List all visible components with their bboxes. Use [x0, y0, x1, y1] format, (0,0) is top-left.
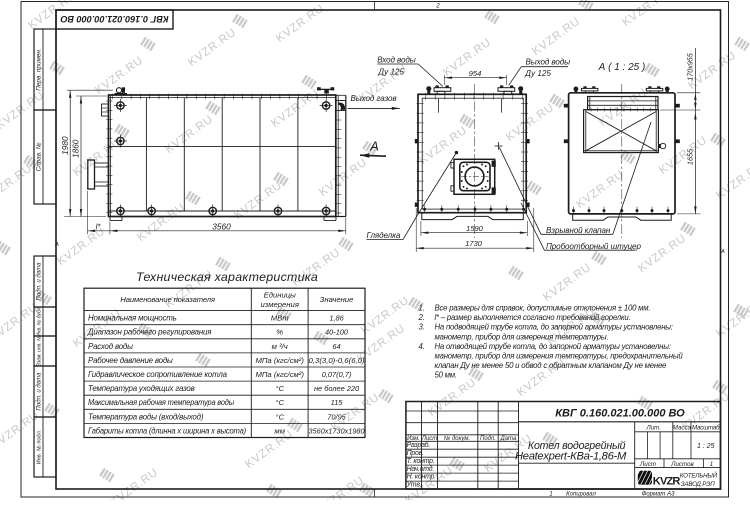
svg-text:1,86: 1,86 [329, 314, 344, 323]
svg-text:МВт: МВт [271, 314, 290, 323]
svg-text:1860: 1860 [71, 139, 81, 158]
svg-text:Пров.: Пров. [407, 450, 424, 457]
svg-text:Все размеры для справок, допус: Все размеры для справок, допустимые откл… [435, 304, 651, 313]
svg-text:0,07(0,7): 0,07(0,7) [322, 370, 352, 379]
svg-text:4.: 4. [418, 342, 425, 351]
svg-text:Подп. и дата: Подп. и дата [36, 372, 43, 411]
svg-text:Пробоотборный штуцер: Пробоотборный штуцер [546, 242, 641, 251]
svg-text:1590: 1590 [466, 224, 484, 233]
svg-text:954: 954 [469, 69, 482, 78]
svg-text:Дата: Дата [499, 436, 516, 442]
svg-text:КОТЕЛЬНЫЙ: КОТЕЛЬНЫЙ [680, 471, 718, 479]
svg-text:Выход воды: Выход воды [526, 57, 571, 66]
svg-text:Т. контр.: Т. контр. [407, 458, 435, 465]
svg-text:°С: °С [275, 412, 284, 421]
svg-text:Масса: Масса [673, 424, 692, 431]
svg-text:измерения: измерения [260, 300, 298, 309]
svg-text:1655: 1655 [686, 148, 695, 165]
svg-text:1: 1 [710, 461, 713, 468]
svg-text:мм: мм [274, 426, 285, 435]
svg-text:64: 64 [332, 342, 340, 351]
svg-text:На отводящей трубе котла, до з: На отводящей трубе котла, до запорной ар… [435, 342, 671, 351]
svg-text:1 : 25: 1 : 25 [697, 443, 715, 450]
svg-text:3.: 3. [418, 323, 425, 332]
svg-text:А ( 1 : 25 ): А ( 1 : 25 ) [598, 62, 646, 73]
svg-text:l* – размер выполняется соглас: l* – размер выполняется согласно требова… [435, 313, 631, 322]
svg-text:%: % [276, 328, 283, 337]
svg-text:Ду 125: Ду 125 [524, 69, 551, 78]
svg-text:Максимальная рабочая температу: Максимальная рабочая температура воды [88, 398, 234, 407]
svg-text:КВГ 0.160.021.00.000 ВО: КВГ 0.160.021.00.000 ВО [60, 14, 168, 24]
svg-text:Лит.: Лит. [645, 424, 661, 431]
svg-text:Диапазон рабочего регулировани: Диапазон рабочего регулирования [87, 328, 212, 337]
svg-text:170х955: 170х955 [686, 52, 695, 81]
svg-text:КВГ 0.160.021.00.000 ВО: КВГ 0.160.021.00.000 ВО [555, 408, 685, 420]
svg-text:МПа (кгс/см²): МПа (кгс/см²) [255, 370, 304, 379]
svg-text:Номинальная мощность: Номинальная мощность [88, 314, 177, 323]
svg-text:м ³/ч: м ³/ч [272, 342, 288, 351]
svg-text:А: А [720, 249, 725, 255]
svg-text:40-100: 40-100 [325, 328, 349, 337]
svg-text:Взрывной клапан: Взрывной клапан [546, 226, 611, 235]
svg-text:Подп.: Подп. [480, 436, 496, 442]
svg-text:Инв. № дубл.: Инв. № дубл. [37, 306, 43, 337]
svg-text:Утв.: Утв. [406, 482, 422, 489]
svg-text:1: 1 [549, 492, 552, 498]
svg-text:2: 2 [435, 4, 440, 10]
svg-text:Температура воды (вход/выход): Температура воды (вход/выход) [88, 412, 204, 421]
svg-text:Heatexpert-КВа-1,86-М: Heatexpert-КВа-1,86-М [515, 450, 627, 462]
svg-text:115: 115 [331, 398, 344, 407]
svg-text:клапан Ду не менее 50 и обвод: клапан Ду не менее 50 и обвод с обратным… [435, 361, 668, 370]
svg-text:Гидравлическое сопротивление к: Гидравлическое сопротивление котла [88, 370, 228, 379]
svg-text:Масштаб: Масштаб [692, 424, 720, 431]
svg-text:А: А [54, 242, 59, 248]
svg-text:0,3(3,0)-0,6(6,0): 0,3(3,0)-0,6(6,0) [309, 356, 366, 365]
svg-text:Взам. инв. №: Взам. инв. № [37, 335, 43, 367]
svg-text:Наименование показателя: Наименование показателя [120, 295, 215, 304]
svg-text:3560х1730х1980: 3560х1730х1980 [309, 426, 366, 435]
svg-text:На подводящей трубе котла, до: На подводящей трубе котла, до запорной а… [435, 323, 673, 332]
svg-text:Гляделка: Гляделка [367, 231, 401, 240]
svg-text:манометр, прибор для измерения: манометр, прибор для измерения температу… [435, 351, 684, 360]
svg-text:ЗАВОД РЭП: ЗАВОД РЭП [681, 481, 715, 488]
svg-text:Расход воды: Расход воды [88, 342, 133, 351]
svg-text:1.: 1. [418, 304, 425, 313]
svg-text:Листов: Листов [670, 461, 694, 468]
svg-text:1730: 1730 [465, 239, 483, 248]
svg-text:Техническая характеристика: Техническая характеристика [136, 270, 318, 284]
svg-text:не более 220: не более 220 [314, 384, 360, 393]
svg-text:Нач.отд.: Нач.отд. [407, 465, 435, 473]
svg-text:Формат А3: Формат А3 [642, 492, 675, 498]
svg-text:Перв. примен.: Перв. примен. [36, 48, 43, 90]
svg-text:Ду 125: Ду 125 [377, 68, 404, 77]
svg-text:50 мм.: 50 мм. [435, 370, 457, 379]
svg-text:KVZR: KVZR [653, 475, 681, 487]
svg-text:Подп. и дата: Подп. и дата [36, 262, 43, 301]
svg-text:3560: 3560 [212, 221, 231, 231]
svg-text:70/95: 70/95 [327, 412, 346, 421]
svg-text:Справ. №: Справ. № [36, 142, 43, 171]
svg-text:№ докум.: № докум. [444, 435, 470, 442]
svg-text:Габариты котла (длинна х ширин: Габариты котла (длинна х ширина х высота… [88, 426, 247, 435]
svg-text:1980: 1980 [60, 136, 70, 155]
svg-text:°С: °С [275, 384, 284, 393]
svg-text:Рабочее давление воды: Рабочее давление воды [88, 356, 173, 365]
svg-text:Лист: Лист [639, 461, 656, 468]
svg-text:Инв. № подл.: Инв. № подл. [37, 430, 43, 465]
svg-text:Выход газов: Выход газов [351, 94, 397, 103]
svg-text:манометр, прибор для измерения: манометр, прибор для измерения температу… [435, 332, 609, 341]
svg-text:Вход воды: Вход воды [377, 56, 416, 65]
svg-text:Температура уходящих газов: Температура уходящих газов [88, 384, 195, 393]
svg-text:Копировал: Копировал [566, 492, 596, 498]
svg-text:Единицы: Единицы [264, 291, 297, 300]
svg-text:МПа (кгс/см²): МПа (кгс/см²) [255, 356, 304, 365]
svg-text:Значение: Значение [320, 295, 354, 304]
svg-text:2.: 2. [417, 313, 425, 322]
svg-text:Разраб.: Разраб. [407, 441, 431, 449]
svg-text:А: А [369, 140, 378, 154]
svg-text:Н. контр.: Н. контр. [407, 474, 437, 481]
svg-text:°С: °С [275, 398, 284, 407]
